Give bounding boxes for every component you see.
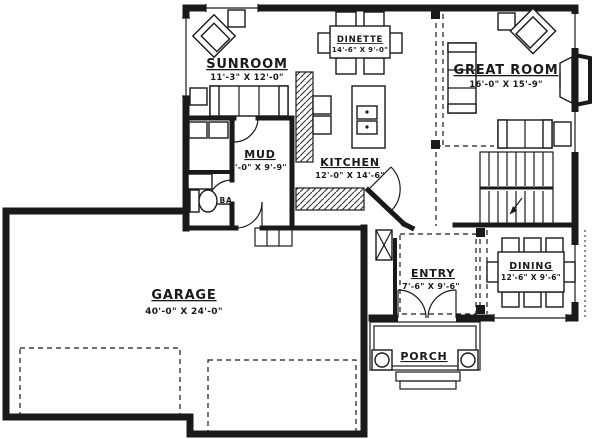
garage-label: GARAGE xyxy=(151,288,216,303)
entry-label: ENTRY xyxy=(411,267,455,280)
chair xyxy=(554,122,571,146)
sunroom-dims: 11'-3" X 12'-0" xyxy=(210,73,284,83)
dining-table xyxy=(498,252,564,292)
dining-dims: 12'-6" X 9'-6" xyxy=(501,273,561,282)
porch-label: PORCH xyxy=(400,350,447,363)
closet-shelves xyxy=(189,122,228,138)
mud-dims: 6'-0" X 9'-9" xyxy=(229,163,287,172)
chair xyxy=(502,292,519,307)
bath-fixtures xyxy=(188,174,217,212)
side-table xyxy=(498,13,515,30)
dining-label: DINING xyxy=(509,261,552,272)
floor-plan-drawing: SUNROOM 11'-3" X 12'-0" DINETTE 14'-6" X… xyxy=(0,0,600,439)
chair xyxy=(502,238,519,253)
chair xyxy=(336,58,356,74)
mud-label: MUD xyxy=(244,148,275,161)
entry-dims: 7'-6" X 9'-6" xyxy=(402,282,460,291)
side-table xyxy=(228,10,245,27)
vanity-sink xyxy=(188,174,212,189)
porch-column xyxy=(458,350,478,370)
great-room-dims: 16'-0" X 15'-9" xyxy=(469,80,543,90)
chair xyxy=(546,292,563,307)
wall-oven xyxy=(313,116,331,134)
chair xyxy=(546,238,563,253)
chair xyxy=(364,58,384,74)
floor-plan: SUNROOM 11'-3" X 12'-0" DINETTE 14'-6" X… xyxy=(0,0,600,439)
tv-unit xyxy=(560,57,572,103)
kitchen-label: KITCHEN xyxy=(320,156,380,169)
chimney-hatch xyxy=(296,72,313,162)
sunroom-label: SUNROOM xyxy=(206,57,287,72)
garage-dims: 40'-0" X 24'-0" xyxy=(145,307,223,317)
porch-steps xyxy=(396,372,460,389)
dinette-dims: 14'-6" X 9'-0" xyxy=(332,46,388,54)
bath-label: BA xyxy=(219,196,232,205)
garage-steps xyxy=(255,228,292,246)
kitchen-fixtures xyxy=(296,72,385,210)
chair xyxy=(524,292,541,307)
toilet-bowl xyxy=(199,190,217,212)
kitchen-counter xyxy=(296,188,364,210)
end-table xyxy=(190,88,207,105)
chair xyxy=(524,238,541,253)
kitchen-dims: 12'-0" X 14'-6" xyxy=(315,171,385,180)
great-room-label: GREAT ROOM xyxy=(453,63,558,78)
sofa xyxy=(448,43,476,113)
dinette-label: DINETTE xyxy=(337,35,383,45)
toilet-tank xyxy=(190,190,199,212)
loveseat xyxy=(498,120,552,148)
great-room-furniture xyxy=(448,8,572,148)
wall-oven xyxy=(313,96,331,114)
coat-closet xyxy=(376,230,392,260)
sofa xyxy=(210,86,288,116)
staircase xyxy=(480,152,553,225)
porch-column xyxy=(372,350,392,370)
armchair xyxy=(510,8,555,53)
